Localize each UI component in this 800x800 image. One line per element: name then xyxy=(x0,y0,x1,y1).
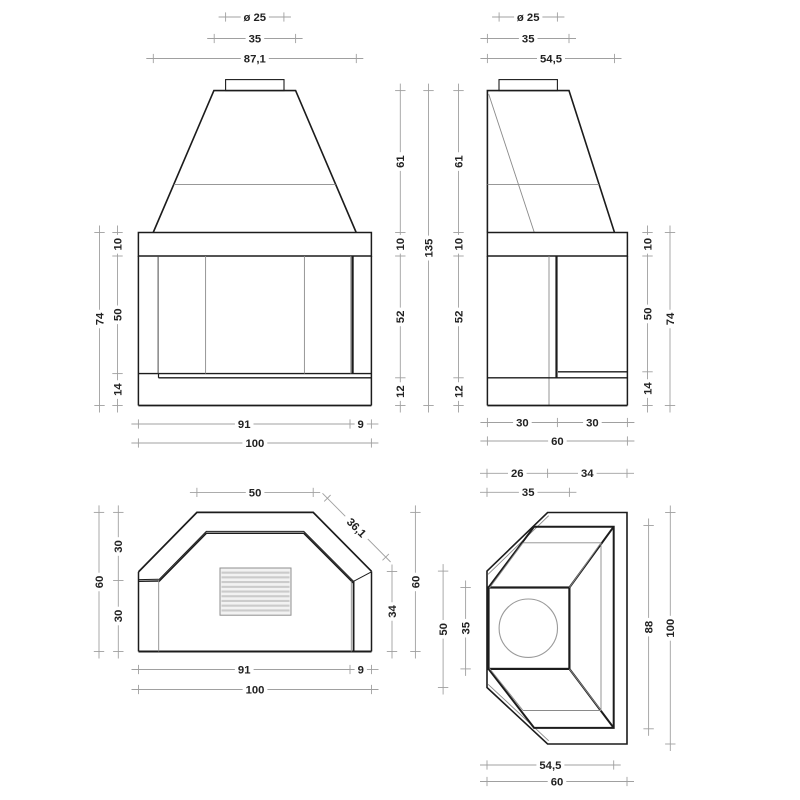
svg-text:91: 91 xyxy=(238,664,251,676)
svg-text:35: 35 xyxy=(461,622,473,635)
svg-text:14: 14 xyxy=(112,383,124,396)
svg-text:ø 25: ø 25 xyxy=(517,12,540,24)
svg-text:60: 60 xyxy=(94,576,106,589)
svg-text:30: 30 xyxy=(113,540,125,553)
svg-text:50: 50 xyxy=(249,487,262,499)
svg-text:10: 10 xyxy=(395,238,407,251)
svg-text:54,5: 54,5 xyxy=(540,53,562,65)
svg-text:91: 91 xyxy=(238,419,251,431)
svg-text:9: 9 xyxy=(358,419,364,431)
svg-text:30: 30 xyxy=(516,417,529,429)
svg-text:30: 30 xyxy=(113,610,125,623)
svg-text:60: 60 xyxy=(551,436,564,448)
svg-text:61: 61 xyxy=(453,155,465,168)
svg-text:34: 34 xyxy=(581,468,594,480)
svg-text:135: 135 xyxy=(423,239,435,258)
svg-text:50: 50 xyxy=(642,308,654,321)
svg-text:35: 35 xyxy=(522,33,535,45)
svg-text:60: 60 xyxy=(410,576,422,589)
svg-text:100: 100 xyxy=(246,684,265,696)
svg-text:26: 26 xyxy=(511,468,524,480)
svg-text:35: 35 xyxy=(249,33,262,45)
svg-text:54,5: 54,5 xyxy=(539,760,561,772)
svg-text:34: 34 xyxy=(387,605,399,618)
svg-text:10: 10 xyxy=(642,238,654,251)
svg-text:30: 30 xyxy=(586,417,599,429)
svg-text:52: 52 xyxy=(453,311,465,324)
svg-text:60: 60 xyxy=(551,776,564,788)
svg-text:35: 35 xyxy=(522,487,535,499)
svg-text:100: 100 xyxy=(245,438,264,450)
svg-text:12: 12 xyxy=(395,385,407,398)
svg-text:50: 50 xyxy=(438,623,450,636)
svg-text:88: 88 xyxy=(644,621,656,634)
svg-text:14: 14 xyxy=(642,382,654,395)
svg-text:74: 74 xyxy=(665,312,677,325)
svg-text:12: 12 xyxy=(453,385,465,398)
svg-text:100: 100 xyxy=(665,619,677,638)
svg-text:9: 9 xyxy=(358,664,364,676)
svg-text:87,1: 87,1 xyxy=(244,53,266,65)
svg-text:ø 25: ø 25 xyxy=(243,12,266,24)
svg-text:52: 52 xyxy=(395,311,407,324)
svg-text:10: 10 xyxy=(112,238,124,251)
svg-text:10: 10 xyxy=(453,238,465,251)
svg-text:50: 50 xyxy=(112,309,124,322)
svg-text:61: 61 xyxy=(395,155,407,168)
svg-text:74: 74 xyxy=(94,312,106,325)
